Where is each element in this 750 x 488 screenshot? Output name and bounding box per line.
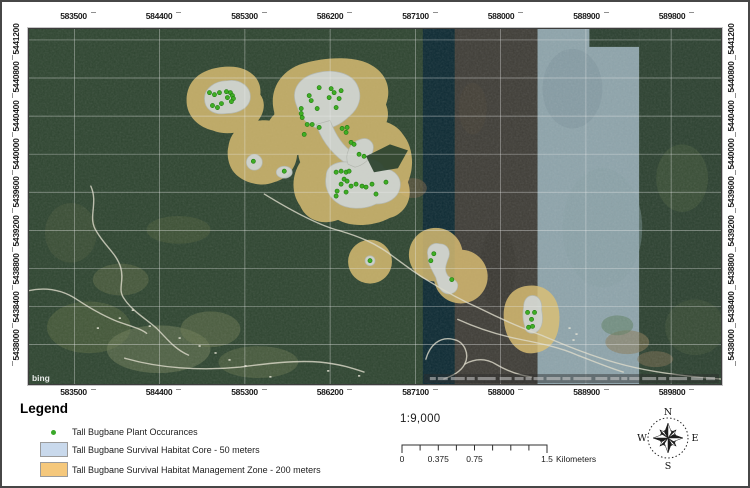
axis-minor-tick [735, 323, 736, 328]
building-speck [119, 317, 121, 319]
plant-occurrence-point [307, 94, 311, 98]
plant-occurrence-point [368, 259, 372, 263]
plant-occurrence-point [339, 182, 343, 186]
building-speck [97, 327, 99, 329]
axis-minor-tick [262, 389, 267, 390]
building-speck [269, 376, 271, 378]
plant-occurrence-point [340, 126, 344, 130]
compass-north-label: N [664, 407, 672, 418]
plant-occurrence-point [329, 87, 333, 91]
axis-minor-tick [604, 389, 609, 390]
axis-label-bottom: 583500 [60, 387, 87, 397]
compass-rose: N S W E [634, 402, 702, 474]
plant-occurrence-point [354, 182, 358, 186]
plant-occurrence-point [526, 325, 530, 329]
axis-label-bottom: 584400 [146, 387, 173, 397]
axis-label-right: 5439600 [726, 177, 736, 208]
building-speck [568, 327, 570, 329]
axis-label-left: 5439200 [11, 215, 21, 246]
plant-occurrence-point [309, 99, 313, 103]
plant-occurrence-point [352, 142, 356, 146]
axis-label-bottom: 589800 [659, 387, 686, 397]
axis-label-left: 5441200 [11, 24, 21, 55]
axis-label-bottom: 585300 [231, 387, 258, 397]
axis-minor-tick [12, 361, 13, 366]
plant-occurrence-point [332, 91, 336, 95]
axis-minor-tick [347, 12, 352, 13]
plant-occurrence-point [317, 125, 321, 129]
axis-minor-tick [12, 132, 13, 137]
plant-occurrence-point [530, 324, 534, 328]
plant-occurrence-point [357, 152, 361, 156]
plant-occurrence-point [302, 132, 306, 136]
plant-occurrence-point [347, 169, 351, 173]
plant-occurrence-marker [51, 430, 56, 435]
axis-label-right: 5438800 [726, 253, 736, 284]
compass-south-label: S [665, 461, 672, 472]
building-speck [358, 375, 360, 377]
axis-label-left: 5438400 [11, 292, 21, 323]
axis-minor-tick [176, 12, 181, 13]
plant-occurrence-point [525, 310, 529, 314]
plant-occurrence-point [300, 115, 304, 119]
axis-label-top: 585300 [231, 11, 258, 21]
axis-label-left: 5440000 [11, 138, 21, 169]
legend-item-label: Tall Bugbane Survival Habitat Core - 50 … [72, 445, 260, 455]
building-speck [214, 352, 216, 354]
building-speck [179, 337, 181, 339]
axis-minor-tick [12, 247, 13, 252]
scale-unit-label: Kilometers [556, 454, 596, 464]
plant-occurrence-point [345, 125, 349, 129]
building-speck [199, 345, 201, 347]
axis-label-right: 5440400 [726, 100, 736, 131]
axis-label-bottom: 588000 [488, 387, 515, 397]
axis-minor-tick [12, 93, 13, 98]
building-speck [572, 339, 574, 341]
legend-item-label: Tall Bugbane Survival Habitat Management… [72, 465, 321, 475]
plant-occurrence-point [429, 259, 433, 263]
legend-item-label: Tall Bugbane Plant Occurances [72, 427, 198, 437]
axis-minor-tick [12, 323, 13, 328]
axis-label-top: 586200 [317, 11, 344, 21]
plant-occurrence-point [210, 103, 214, 107]
plant-occurrence-point [334, 105, 338, 109]
bing-logo: bing [32, 373, 50, 383]
axis-label-left: 5438000 [11, 330, 21, 361]
plant-occurrence-point [450, 278, 454, 282]
axis-label-top: 588000 [488, 11, 515, 21]
axis-label-bottom: 587100 [402, 387, 429, 397]
axis-minor-tick [12, 208, 13, 213]
axis-label-right: 5440000 [726, 138, 736, 169]
axis-label-right: 5438400 [726, 292, 736, 323]
axis-label-right: 5438000 [726, 330, 736, 361]
axis-minor-tick [735, 247, 736, 252]
plant-occurrence-point [529, 317, 533, 321]
map-canvas[interactable]: bing [28, 28, 722, 385]
plant-occurrence-point [310, 122, 314, 126]
scale-bar-value: 1.5 [541, 454, 553, 464]
axis-label-top: 587100 [402, 11, 429, 21]
axis-minor-tick [12, 285, 13, 290]
plant-occurrence-point [344, 190, 348, 194]
habitat-core-swatch [40, 442, 68, 457]
scale-bar-value: 0.375 [428, 454, 449, 464]
axis-label-left: 5438800 [11, 253, 21, 284]
axis-minor-tick [689, 12, 694, 13]
plant-occurrence-point [327, 96, 331, 100]
axis-label-bottom: 586200 [317, 387, 344, 397]
plant-occurrence-point [374, 192, 378, 196]
axis-minor-tick [735, 170, 736, 175]
plant-occurrence-point [224, 90, 228, 94]
axis-minor-tick [262, 12, 267, 13]
plant-occurrence-point [337, 97, 341, 101]
axis-minor-tick [689, 389, 694, 390]
axis-minor-tick [433, 12, 438, 13]
plant-occurrence-point [225, 96, 229, 100]
plant-occurrence-point [532, 310, 536, 314]
axis-label-top: 583500 [60, 11, 87, 21]
plant-occurrence-point [339, 89, 343, 93]
plant-occurrence-point [344, 130, 348, 134]
map-document: bing 58350058350058440058440058530058530… [0, 0, 750, 488]
axis-minor-tick [604, 12, 609, 13]
axis-label-left: 5440800 [11, 62, 21, 93]
axis-minor-tick [518, 12, 523, 13]
building-speck [228, 359, 230, 361]
axis-label-top: 588900 [573, 11, 600, 21]
plant-occurrence-point [299, 111, 303, 115]
plant-occurrence-point [335, 189, 339, 193]
axis-label-right: 5439200 [726, 215, 736, 246]
plant-occurrence-point [282, 169, 286, 173]
axis-label-top: 584400 [146, 11, 173, 21]
scale-bar-value: 0 [400, 454, 405, 464]
plant-occurrence-point [364, 185, 368, 189]
scale-ratio-text: 1:9,000 [400, 413, 440, 425]
axis-minor-tick [735, 208, 736, 213]
plant-occurrence-point [219, 101, 223, 105]
axis-label-left: 5440400 [11, 100, 21, 131]
compass-star [653, 423, 683, 453]
axis-minor-tick [12, 170, 13, 175]
plant-occurrence-point [384, 180, 388, 184]
plant-occurrence-point [370, 182, 374, 186]
plant-occurrence-point [345, 179, 349, 183]
plant-occurrence-point [251, 159, 255, 163]
plant-occurrence-point [299, 106, 303, 110]
map-svg: bing [29, 29, 721, 384]
scale-bar-value: 0.75 [466, 454, 483, 464]
plant-occurrence-point [212, 93, 216, 97]
plant-occurrence-point [334, 170, 338, 174]
plant-occurrence-point [305, 122, 309, 126]
plant-occurrence-point [317, 86, 321, 90]
plant-occurrence-point [362, 154, 366, 158]
management-zone-swatch [40, 462, 68, 477]
plant-occurrence-point [207, 91, 211, 95]
axis-minor-tick [176, 389, 181, 390]
axis-label-right: 5441200 [726, 24, 736, 55]
axis-label-top: 589800 [659, 11, 686, 21]
plant-occurrence-point [315, 106, 319, 110]
plant-occurrence-point [432, 252, 436, 256]
plant-occurrence-point [360, 184, 364, 188]
building-speck [149, 325, 151, 327]
plant-occurrence-point [229, 100, 233, 104]
axis-minor-tick [735, 55, 736, 60]
scale-bar [400, 442, 552, 454]
map-attribution-strip [424, 374, 719, 383]
plant-occurrence-point [215, 105, 219, 109]
axis-label-bottom: 588900 [573, 387, 600, 397]
axis-minor-tick [433, 389, 438, 390]
compass-west-label: W [637, 433, 647, 444]
axis-label-left: 5439600 [11, 177, 21, 208]
plant-occurrence-point [217, 91, 221, 95]
axis-label-right: 5440800 [726, 62, 736, 93]
axis-minor-tick [735, 361, 736, 366]
axis-minor-tick [91, 12, 96, 13]
compass-east-label: E [692, 433, 699, 444]
axis-minor-tick [735, 285, 736, 290]
plant-occurrence-point [339, 169, 343, 173]
building-speck [575, 333, 577, 335]
axis-minor-tick [735, 93, 736, 98]
axis-minor-tick [91, 389, 96, 390]
legend-title: Legend [20, 401, 68, 416]
axis-minor-tick [347, 389, 352, 390]
plant-occurrence-point [334, 194, 338, 198]
plant-occurrence-point [349, 184, 353, 188]
building-speck [327, 370, 329, 372]
axis-minor-tick [518, 389, 523, 390]
building-speck [132, 309, 134, 311]
axis-minor-tick [12, 55, 13, 60]
axis-minor-tick [735, 132, 736, 137]
